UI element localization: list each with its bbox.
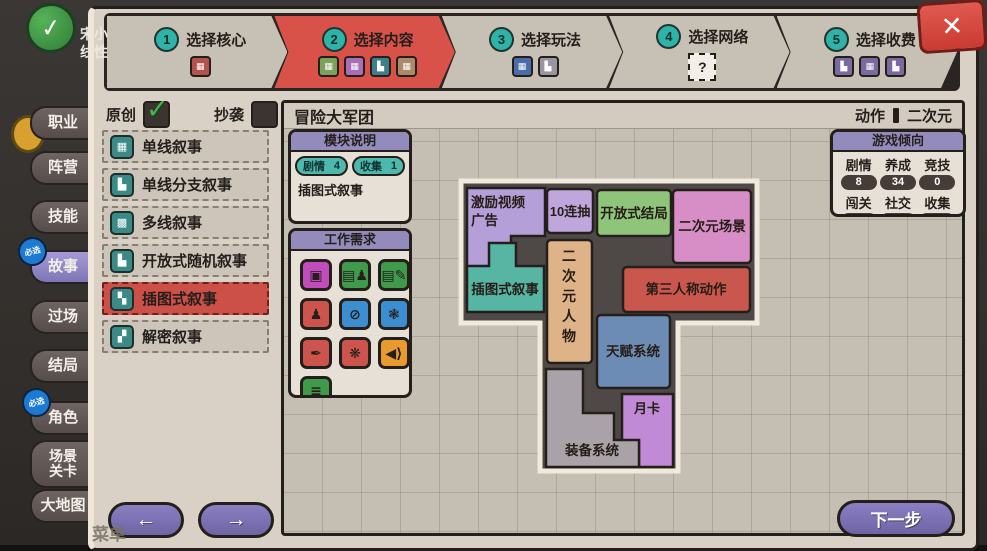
module-stat-pill: 剧情4	[295, 156, 348, 176]
module-stats: 剧情4收集1	[291, 152, 409, 178]
story-item-3[interactable]: ▩多线叙事	[102, 206, 269, 239]
story-item-2[interactable]: ▙单线分支叙事	[102, 168, 269, 201]
sidebar-tab-6[interactable]: 结局	[30, 349, 94, 383]
original-checkbox[interactable]: ✓	[143, 101, 170, 128]
step-label: 选择收费	[856, 29, 916, 50]
unknown-module-icon: ?	[688, 53, 716, 81]
style-tag: 二次元	[907, 105, 952, 126]
piece-third-person-action[interactable]: 第三人称动作	[623, 267, 750, 312]
menu-label: 菜单	[92, 520, 126, 545]
check-icon: ✓	[146, 94, 169, 125]
tendency-label: 剧情	[839, 155, 878, 174]
confirm-check-icon: ✓	[23, 0, 79, 56]
module-stat-value: 1	[391, 160, 397, 172]
step-icons: ▦▦▙▦	[318, 56, 417, 77]
step-label: 选择网络	[688, 26, 748, 47]
branch-line-icon: ▙	[110, 173, 134, 197]
sidebar-tab-3[interactable]: 技能	[30, 200, 94, 234]
book-icon: ≣	[300, 376, 332, 398]
step-number: 3	[489, 27, 514, 52]
close-button[interactable]: ✕	[916, 0, 987, 54]
step-label: 选择玩法	[521, 29, 581, 50]
sidebar-tab-2[interactable]: 阵营	[30, 151, 94, 185]
module-board: 激励视频广告10连抽开放式结局二次元场景插图式叙事二次元人物第三人称动作天赋系统…	[440, 160, 780, 490]
step-icons: ▙▦▙	[833, 56, 906, 77]
step-3[interactable]: 3选择玩法▦▙	[442, 16, 622, 88]
story-item-1[interactable]: ▦单线叙事	[102, 130, 269, 163]
originality-row: 原创 ✓ 抄袭	[106, 101, 278, 128]
open-random-icon: ▙	[110, 249, 134, 273]
step-icons: ▦	[190, 56, 211, 77]
piece-label: 开放式结局	[600, 205, 668, 221]
module-stat-value: 4	[334, 160, 340, 172]
piece-label: 第三人称动作	[646, 281, 727, 297]
speaker-icon: ◀⟩	[378, 337, 410, 369]
story-item-label: 插图式叙事	[142, 288, 217, 309]
sidebar-tab-5[interactable]: 过场	[30, 300, 94, 334]
tendency-value: 0	[919, 175, 955, 190]
piece-label: 二次元人物	[562, 248, 577, 344]
core-module-icon: ▦	[190, 56, 211, 77]
puzzle-narrative-icon: ▞	[110, 325, 134, 349]
play-module-icon-gray: ▙	[538, 56, 559, 77]
step-number: 5	[824, 27, 849, 52]
tendency-stat: 养成34	[878, 155, 917, 190]
module-description: 插图式叙事	[291, 178, 409, 201]
clipboard-person-icon: ▤♟	[339, 259, 371, 291]
pay-module-icon-1: ▙	[833, 56, 854, 77]
module-stat-label: 剧情	[303, 158, 325, 174]
step-head: 3选择玩法	[489, 27, 581, 52]
cpu-icon: ▣	[300, 259, 332, 291]
step-icons: ▦▙	[512, 56, 559, 77]
work-needs-grid: ▣▤♟▤✎♟⊘❃✒❋◀⟩≣	[291, 251, 409, 398]
piece-anime-scene[interactable]: 二次元场景	[673, 190, 751, 263]
step-label: 选择核心	[186, 29, 246, 50]
content-module-icon-purple: ▦	[344, 56, 365, 77]
story-item-label: 单线分支叙事	[142, 174, 232, 195]
tendency-title: 游戏倾向	[833, 132, 963, 152]
step-number: 1	[154, 27, 179, 52]
prohibit-icon: ⊘	[339, 298, 371, 330]
clipboard-pencil-icon: ▤✎	[378, 259, 410, 291]
next-step-button[interactable]: 下一步	[837, 500, 955, 537]
game-tags: 动作 二次元	[855, 105, 952, 126]
work-needs-title: 工作需求	[291, 231, 409, 251]
brain-icon: ❃	[378, 298, 410, 330]
tag-separator	[893, 108, 899, 123]
module-stat-pill: 收集1	[352, 156, 405, 176]
tendency-stat: 闯关15	[839, 193, 878, 217]
piece-label: 二次元场景	[678, 218, 746, 234]
tendency-value: 34	[880, 175, 916, 190]
tendency-value: 3	[919, 213, 955, 217]
step-2[interactable]: 2选择内容▦▦▙▦	[274, 16, 454, 88]
step-head: 5选择收费	[824, 27, 916, 52]
tendency-label: 养成	[878, 155, 917, 174]
step-head: 4选择网络	[656, 24, 748, 49]
play-module-icon-blue: ▦	[512, 56, 533, 77]
original-label: 原创	[106, 104, 136, 125]
content-module-icon-green: ▦	[318, 56, 339, 77]
step-label: 选择内容	[354, 29, 414, 50]
screen: ✓ 宋小 线性 菜单 职业阵营技能故事必选过场结局角色必选场景 关卡大地图 ✕ …	[0, 0, 987, 551]
story-item-label: 多线叙事	[142, 212, 202, 233]
story-item-label: 开放式随机叙事	[142, 250, 247, 271]
story-item-5[interactable]: ▚插图式叙事	[102, 282, 269, 315]
sidebar-tab-9[interactable]: 大地图	[30, 489, 94, 523]
pager: ← →	[108, 502, 274, 538]
story-type-list: ▦单线叙事▙单线分支叙事▩多线叙事▙开放式随机叙事▚插图式叙事▞解密叙事	[102, 130, 269, 358]
piece-anime-character[interactable]: 二次元人物	[547, 240, 592, 363]
step-head: 1选择核心	[154, 27, 246, 52]
copy-label: 抄袭	[214, 104, 244, 125]
tendency-label: 闯关	[839, 193, 878, 212]
piece-label: 插图式叙事	[471, 281, 539, 297]
game-title: 冒险大军团	[294, 104, 374, 128]
piece-ten-pull[interactable]: 10连抽	[547, 189, 593, 233]
genre-tag: 动作	[855, 105, 885, 126]
copy-checkbox[interactable]	[251, 101, 278, 128]
story-item-4[interactable]: ▙开放式随机叙事	[102, 244, 269, 277]
tendency-stat: 竞技0	[918, 155, 957, 190]
tendency-label: 竞技	[918, 155, 957, 174]
module-info-box: 模块说明 剧情4收集1 插图式叙事	[288, 129, 412, 224]
tendency-label: 社交	[878, 193, 917, 212]
person-icon: ♟	[300, 298, 332, 330]
single-line-icon: ▦	[110, 135, 134, 159]
player-name: 宋小 线性	[80, 26, 114, 61]
content-module-icon-tan: ▦	[396, 56, 417, 77]
piece-label: 装备系统	[564, 442, 619, 458]
content-module-icon-teal: ▙	[370, 56, 391, 77]
story-item-label: 解密叙事	[142, 326, 202, 347]
piece-label: 10连抽	[550, 204, 590, 219]
seal-pen-icon: ✒	[300, 337, 332, 369]
tendency-value: 8	[841, 175, 877, 190]
piece-open-ending[interactable]: 开放式结局	[597, 190, 671, 236]
pay-module-icon-3: ▙	[885, 56, 906, 77]
tendency-label: 收集	[918, 193, 957, 212]
tendency-value: 15	[841, 213, 877, 217]
tendency-value: 0	[880, 213, 916, 217]
sidebar-tab-8[interactable]: 场景 关卡	[30, 440, 94, 488]
tendency-stat: 收集3	[918, 193, 957, 217]
pay-module-icon-2: ▦	[859, 56, 880, 77]
step-head: 2选择内容	[322, 27, 414, 52]
stepper: 1选择核心▦2选择内容▦▦▙▦3选择玩法▦▙4选择网络?5选择收费▙▦▙	[104, 13, 960, 91]
step-4[interactable]: 4选择网络?	[609, 16, 789, 88]
next-arrow-button[interactable]: →	[198, 502, 274, 538]
tendency-stat: 社交0	[878, 193, 917, 217]
step-1[interactable]: 1选择核心▦	[107, 16, 287, 88]
piece-talent-system[interactable]: 天赋系统	[597, 315, 670, 388]
piece-label: 月卡	[633, 401, 660, 416]
board-panel-header: 冒险大军团 动作 二次元	[284, 103, 962, 129]
tendency-grid: 剧情8养成34竞技0闯关15社交0收集3	[833, 152, 963, 217]
sidebar-tab-1[interactable]: 职业	[30, 106, 94, 140]
tendency-box: 游戏倾向 剧情8养成34竞技0闯关15社交0收集3	[830, 129, 966, 217]
multi-line-icon: ▩	[110, 211, 134, 235]
illustrated-icon: ▚	[110, 287, 134, 311]
story-item-label: 单线叙事	[142, 136, 202, 157]
work-needs-box: 工作需求 ▣▤♟▤✎♟⊘❃✒❋◀⟩≣	[288, 228, 412, 398]
step-number: 4	[656, 24, 681, 49]
splash-icon: ❋	[339, 337, 371, 369]
module-info-title: 模块说明	[291, 132, 409, 152]
step-icons: ?	[688, 53, 716, 81]
module-stat-label: 收集	[360, 158, 382, 174]
piece-label: 天赋系统	[606, 343, 660, 359]
story-item-6[interactable]: ▞解密叙事	[102, 320, 269, 353]
step-number: 2	[322, 27, 347, 52]
tendency-stat: 剧情8	[839, 155, 878, 190]
